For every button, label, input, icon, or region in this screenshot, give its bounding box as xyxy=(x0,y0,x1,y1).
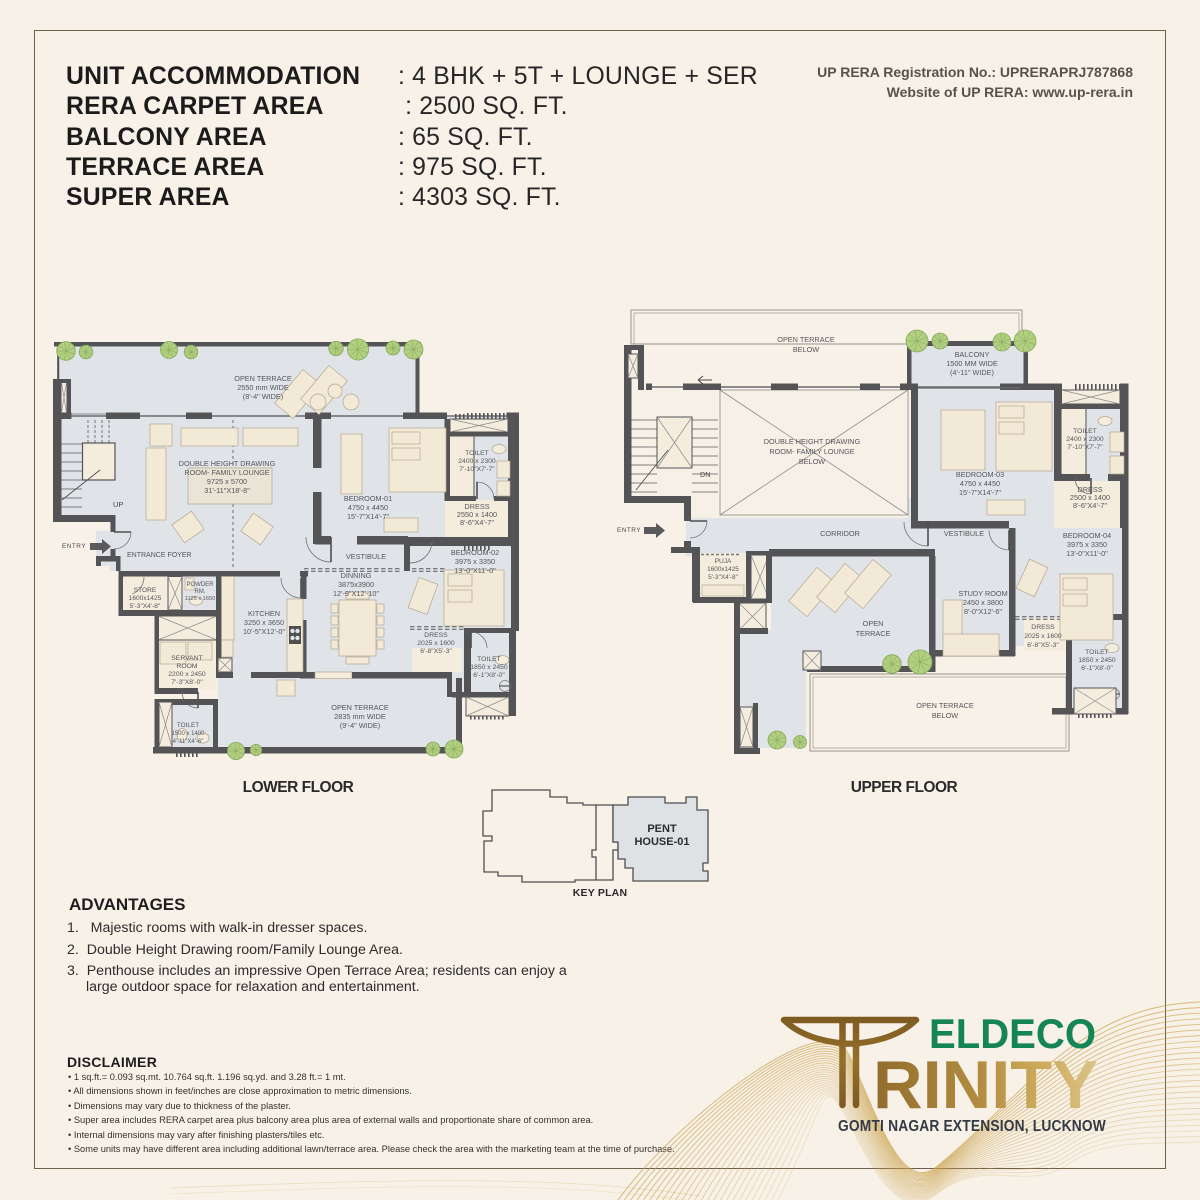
svg-text:GOMTI NAGAR EXTENSION, LUCKNOW: GOMTI NAGAR EXTENSION, LUCKNOW xyxy=(838,1118,1106,1135)
svg-text:RINITY: RINITY xyxy=(873,1047,1098,1123)
